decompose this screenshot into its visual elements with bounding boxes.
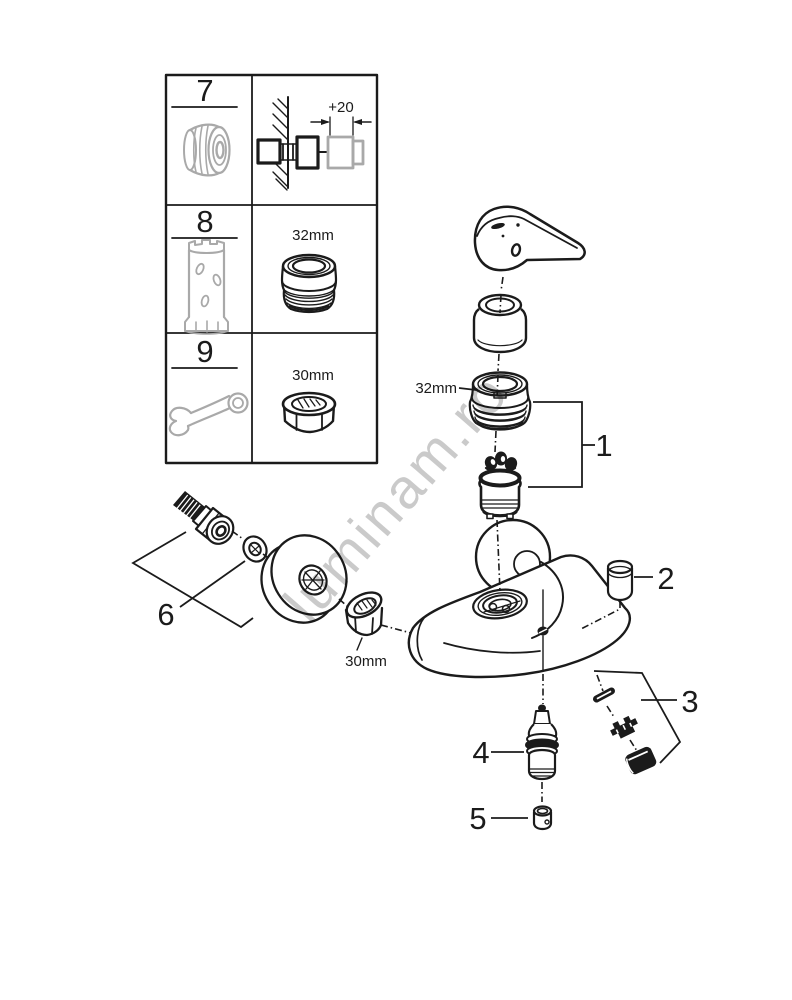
parts-table: 7: [166, 73, 377, 463]
hex-nut-size-label: 30mm: [292, 367, 334, 384]
callout-5-label: 5: [469, 801, 486, 836]
part-number-7: 7: [196, 73, 213, 108]
part-number-8: 8: [196, 204, 213, 239]
part-number-9: 9: [196, 334, 213, 369]
table-row-8: 8 32mm: [172, 204, 336, 334]
plug-part: 2: [608, 561, 675, 600]
mounting-nut-30mm: 30mm: [343, 587, 387, 670]
cartridge: [480, 452, 521, 519]
exploded-diagram-svg: 7: [0, 0, 792, 1000]
s-union-fitting: [173, 491, 239, 549]
aerator-group: 3: [592, 671, 699, 776]
diagram-page: 7: [0, 0, 792, 1000]
callout-1-label: 1: [595, 428, 612, 463]
callout-3-label: 3: [681, 684, 698, 719]
dimension-20: +20: [311, 99, 371, 135]
check-valve: 4: [472, 705, 558, 780]
wall-offset-sketch: +20: [258, 97, 371, 190]
callout-6-label: 6: [157, 597, 174, 632]
handle-cap: [474, 295, 526, 352]
callout-4-label: 4: [472, 735, 489, 770]
wall-offset-label: +20: [328, 99, 353, 116]
ring-nut-32-icon: 32mm: [282, 227, 336, 312]
open-end-wrench-icon: [170, 394, 248, 436]
flow-regulator: [608, 714, 641, 742]
faucet-body: [409, 520, 630, 677]
lever-handle: [475, 207, 585, 270]
adapter-bush: 5: [469, 801, 551, 836]
callout-2-label: 2: [657, 561, 674, 596]
nut-dimension-label: 30mm: [345, 653, 387, 670]
table-row-7: 7: [172, 73, 371, 190]
sleeve: [624, 745, 658, 776]
socket-tool-icon: [185, 240, 228, 334]
hex-nut-30-icon: 30mm: [283, 367, 335, 432]
callout-1: 1: [528, 402, 613, 487]
pin: [592, 686, 616, 703]
callout-6: 6: [133, 532, 253, 632]
extension-nipple-icon: [184, 125, 230, 176]
ring-nut-size-label: 32mm: [292, 227, 334, 244]
